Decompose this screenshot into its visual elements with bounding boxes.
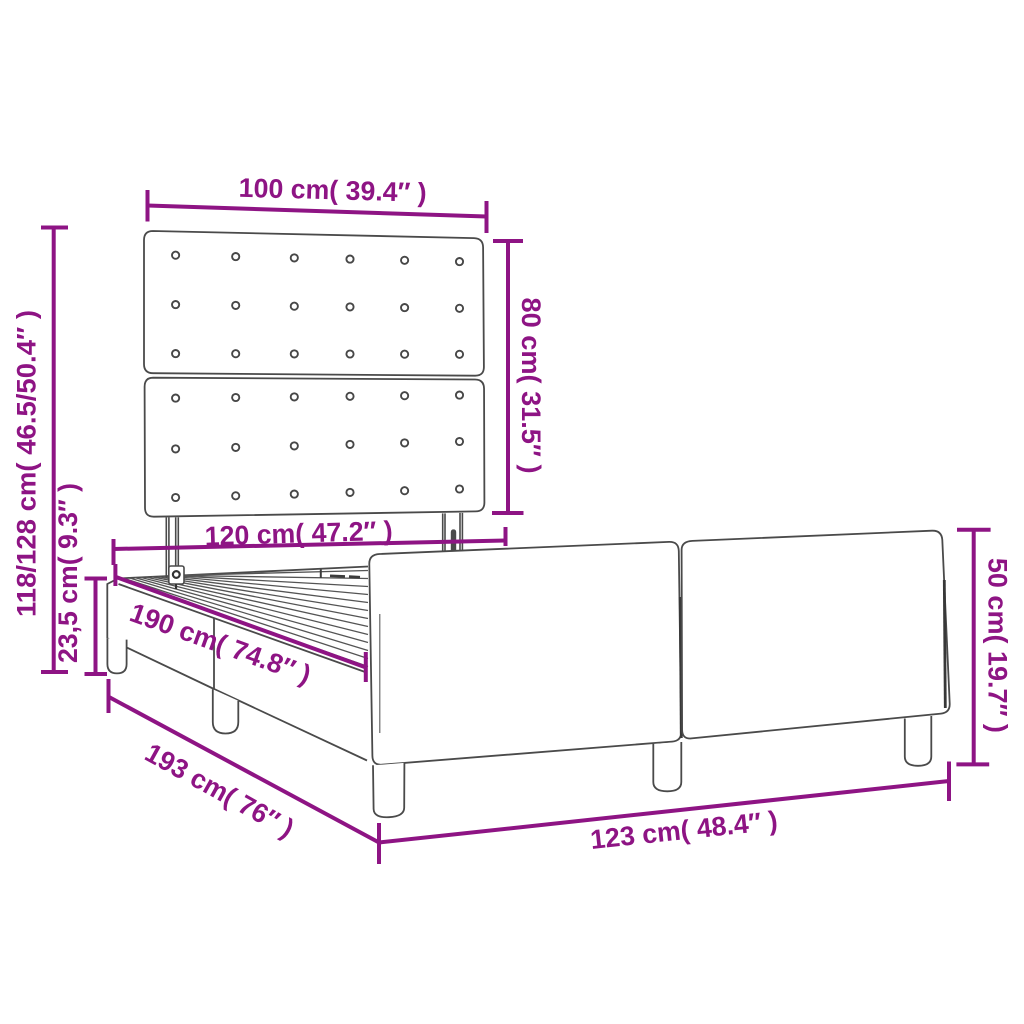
svg-text:100 cm( 39.4″ ): 100 cm( 39.4″ ) xyxy=(238,173,427,208)
svg-text:118/128 cm( 46.5/50.4″ ): 118/128 cm( 46.5/50.4″ ) xyxy=(12,310,42,617)
svg-text:23,5 cm( 9.3″ ): 23,5 cm( 9.3″ ) xyxy=(53,483,83,663)
svg-text:80 cm( 31.5″ ): 80 cm( 31.5″ ) xyxy=(516,298,546,474)
svg-text:120 cm( 47.2″ ): 120 cm( 47.2″ ) xyxy=(204,516,393,552)
svg-text:50 cm( 19.7″ ): 50 cm( 19.7″ ) xyxy=(983,558,1013,733)
